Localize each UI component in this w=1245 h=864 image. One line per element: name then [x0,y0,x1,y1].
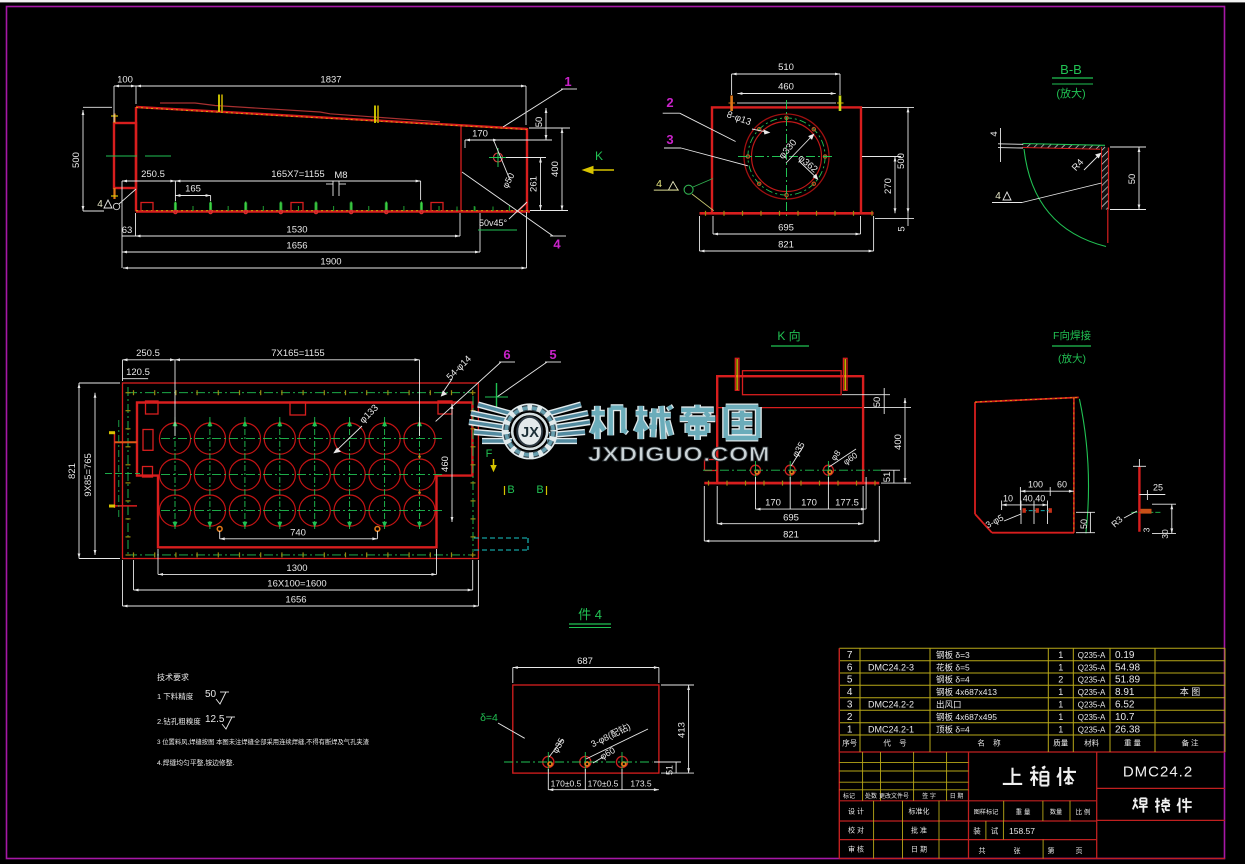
svg-text:1300: 1300 [286,563,307,574]
svg-text:6: 6 [503,347,510,362]
svg-text:170: 170 [765,498,781,509]
svg-text:60: 60 [1057,480,1067,490]
svg-text:JX: JX [521,425,539,441]
svg-text:821: 821 [783,530,799,541]
svg-text:δ=4: δ=4 [480,712,498,724]
svg-text:Q235-A: Q235-A [1078,700,1106,709]
svg-text:51.89: 51.89 [1115,675,1140,686]
svg-text:试: 试 [991,826,999,836]
svg-text:序号: 序号 [842,738,857,748]
svg-text:B: B [507,484,514,496]
svg-text:10.7: 10.7 [1115,712,1135,723]
svg-text:270: 270 [883,178,894,194]
svg-text:1900: 1900 [320,257,341,268]
svg-text:5: 5 [897,226,908,231]
svg-text:Q235-A: Q235-A [1078,651,1106,660]
svg-text:50: 50 [534,117,545,128]
svg-text:1: 1 [1058,687,1063,697]
svg-text:件 4: 件 4 [578,607,602,622]
svg-text:5: 5 [549,347,556,362]
svg-text:100: 100 [117,75,133,86]
svg-text:日 期: 日 期 [911,846,927,854]
svg-text:1530: 1530 [286,225,307,236]
svg-text:标记: 标记 [843,792,855,800]
svg-text:261: 261 [529,176,540,192]
svg-text:处数: 处数 [865,792,877,800]
svg-text:50: 50 [1127,174,1138,185]
svg-text:4: 4 [97,199,103,210]
svg-text:钢板 4x687x495: 钢板 4x687x495 [936,712,997,722]
svg-text:3: 3 [1142,527,1152,532]
svg-text:6: 6 [847,662,853,673]
svg-text:400: 400 [550,161,561,177]
svg-text:K 向: K 向 [777,328,800,343]
svg-text:170: 170 [472,129,488,140]
svg-text:9X85=765: 9X85=765 [83,453,94,497]
svg-text:50: 50 [205,689,217,700]
svg-text:63: 63 [122,225,133,236]
svg-text:出风口: 出风口 [936,699,962,709]
svg-text:1656: 1656 [286,241,307,252]
svg-text:170±0.5: 170±0.5 [551,778,582,788]
svg-text:页: 页 [1076,847,1083,855]
svg-text:4.焊缝均匀平整,铵边修整.: 4.焊缝均匀平整,铵边修整. [157,758,235,767]
svg-text:备 注: 备 注 [1181,738,1199,748]
svg-text:695: 695 [778,223,794,234]
svg-text:审 核: 审 核 [848,845,864,854]
svg-text:钢板 4x687x413: 钢板 4x687x413 [936,687,997,697]
svg-text:500: 500 [71,152,82,168]
svg-text:签 字: 签 字 [922,792,936,800]
svg-text:2: 2 [847,712,853,723]
svg-text:250.5: 250.5 [136,348,160,359]
svg-text:821: 821 [778,240,794,251]
svg-text:16X100=1600: 16X100=1600 [267,579,326,590]
svg-text:500: 500 [896,153,907,169]
svg-text:DMC24.2-1: DMC24.2-1 [868,724,914,734]
svg-text:(放大): (放大) [1058,352,1086,365]
svg-text:400: 400 [893,434,904,450]
svg-text:4: 4 [656,178,662,190]
svg-text:12.5: 12.5 [205,714,225,725]
svg-text:F: F [486,448,493,460]
svg-text:Q235-A: Q235-A [1078,713,1106,722]
svg-text:DMC24.2-2: DMC24.2-2 [868,699,914,709]
svg-text:1656: 1656 [285,595,306,606]
svg-text:3: 3 [847,699,853,710]
svg-text:460: 460 [778,82,794,93]
svg-text:50: 50 [872,397,883,408]
svg-text:165X7=1155: 165X7=1155 [271,169,324,180]
svg-text:标准化: 标准化 [909,807,930,816]
svg-text:173.5: 173.5 [630,778,652,788]
svg-text:花板 δ=5: 花板 δ=5 [936,662,970,672]
svg-text:100: 100 [1028,480,1043,490]
svg-text:材料: 材料 [1084,738,1099,748]
svg-text:钢板 δ=4: 钢板 δ=4 [936,675,970,685]
svg-text:装: 装 [973,826,981,836]
svg-text:图样标记: 图样标记 [974,808,999,816]
svg-text:DMC24.2: DMC24.2 [1123,764,1193,781]
svg-text:170±0.5: 170±0.5 [588,778,619,788]
svg-text:10: 10 [1003,494,1013,504]
svg-text:51: 51 [882,472,893,483]
svg-text:更改文件号: 更改文件号 [879,792,909,800]
svg-text:1 下料精度: 1 下料精度 [157,691,194,701]
svg-text:7: 7 [847,650,853,661]
svg-text:460: 460 [440,456,451,472]
svg-text:张: 张 [1014,846,1021,855]
svg-text:8.91: 8.91 [1115,687,1135,698]
svg-text:177.5: 177.5 [835,498,859,509]
svg-text:165: 165 [185,184,201,195]
svg-text:54.98: 54.98 [1115,662,1140,673]
svg-text:6.52: 6.52 [1115,699,1135,710]
svg-text:1: 1 [1058,699,1063,709]
svg-text:1: 1 [1058,712,1063,722]
svg-text:158.57: 158.57 [1009,826,1035,836]
svg-text:25: 25 [1153,483,1163,493]
svg-text:本 图: 本 图 [1180,686,1201,697]
svg-text:校 对: 校 对 [848,826,864,835]
svg-text:数量: 数量 [1050,808,1062,816]
svg-text:共: 共 [979,846,986,855]
svg-text:重 量: 重 量 [1016,808,1031,816]
svg-text:1837: 1837 [320,75,341,86]
svg-text:2: 2 [666,95,673,110]
svg-text:1: 1 [1058,724,1063,734]
svg-text:695: 695 [783,513,799,524]
svg-text:比 例: 比 例 [1076,807,1091,816]
svg-text:JXDIGUO.COM: JXDIGUO.COM [588,444,770,466]
svg-text:质量: 质量 [1053,738,1069,748]
svg-text:顶板 δ=4: 顶板 δ=4 [936,724,970,734]
svg-text:4: 4 [995,191,1001,202]
svg-text:250.5: 250.5 [141,169,165,180]
svg-text:F向焊接: F向焊接 [1053,329,1091,342]
svg-text:Q235-A: Q235-A [1078,688,1106,697]
svg-text:1: 1 [1058,650,1063,660]
svg-text:设 计: 设 计 [848,807,864,816]
svg-text:2: 2 [1058,675,1063,685]
svg-text:1: 1 [564,74,571,89]
svg-text:3: 3 [666,132,673,147]
svg-text:4: 4 [989,131,1000,136]
svg-text:510: 510 [778,62,794,73]
svg-text:K: K [595,149,603,163]
svg-text:740: 740 [290,528,306,539]
svg-text:名 称: 名 称 [977,738,1001,748]
svg-text:代 号: 代 号 [883,738,906,748]
svg-text:(放大): (放大) [1056,86,1085,100]
svg-text:687: 687 [577,656,593,667]
svg-text:821: 821 [67,463,78,479]
svg-text:钢板 δ=3: 钢板 δ=3 [936,650,970,660]
svg-text:Q235-A: Q235-A [1078,676,1106,685]
svg-text:50v45°: 50v45° [479,218,508,228]
svg-text:重 量: 重 量 [1124,739,1142,748]
svg-text:批 准: 批 准 [911,826,927,835]
svg-text:0.19: 0.19 [1115,650,1135,661]
svg-text:2.钻孔粗糗度: 2.钻孔粗糗度 [157,716,201,726]
svg-text:B: B [536,484,543,496]
svg-text:413: 413 [677,722,688,738]
svg-text:50: 50 [1079,519,1089,529]
svg-text:B-B: B-B [1060,62,1082,77]
svg-text:170: 170 [801,498,817,509]
svg-text:30: 30 [1160,529,1170,539]
svg-text:技术要求: 技术要求 [157,672,189,682]
svg-text:5: 5 [847,675,853,686]
svg-text:第: 第 [1048,846,1055,855]
svg-text:120.5: 120.5 [126,367,150,378]
svg-text:40,40: 40,40 [1023,494,1046,504]
svg-text:51: 51 [665,765,675,775]
svg-text:DMC24.2-3: DMC24.2-3 [868,662,914,672]
svg-text:26.38: 26.38 [1115,724,1140,735]
svg-text:日 期: 日 期 [950,792,964,800]
svg-text:1: 1 [1058,662,1063,672]
svg-text:M8: M8 [334,170,347,181]
svg-text:4: 4 [553,237,561,252]
svg-text:Q235-A: Q235-A [1078,725,1106,734]
svg-text:7X165=1155: 7X165=1155 [271,348,324,359]
svg-text:4: 4 [847,687,853,698]
svg-text:3 位置料风,焊缝按图 本图未注焊缝全部采用连续焊缝,不得有: 3 位置料风,焊缝按图 本图未注焊缝全部采用连续焊缝,不得有断焊及气孔夹渣 [157,737,370,746]
svg-text:Q235-A: Q235-A [1078,663,1106,672]
svg-text:1: 1 [847,724,853,735]
